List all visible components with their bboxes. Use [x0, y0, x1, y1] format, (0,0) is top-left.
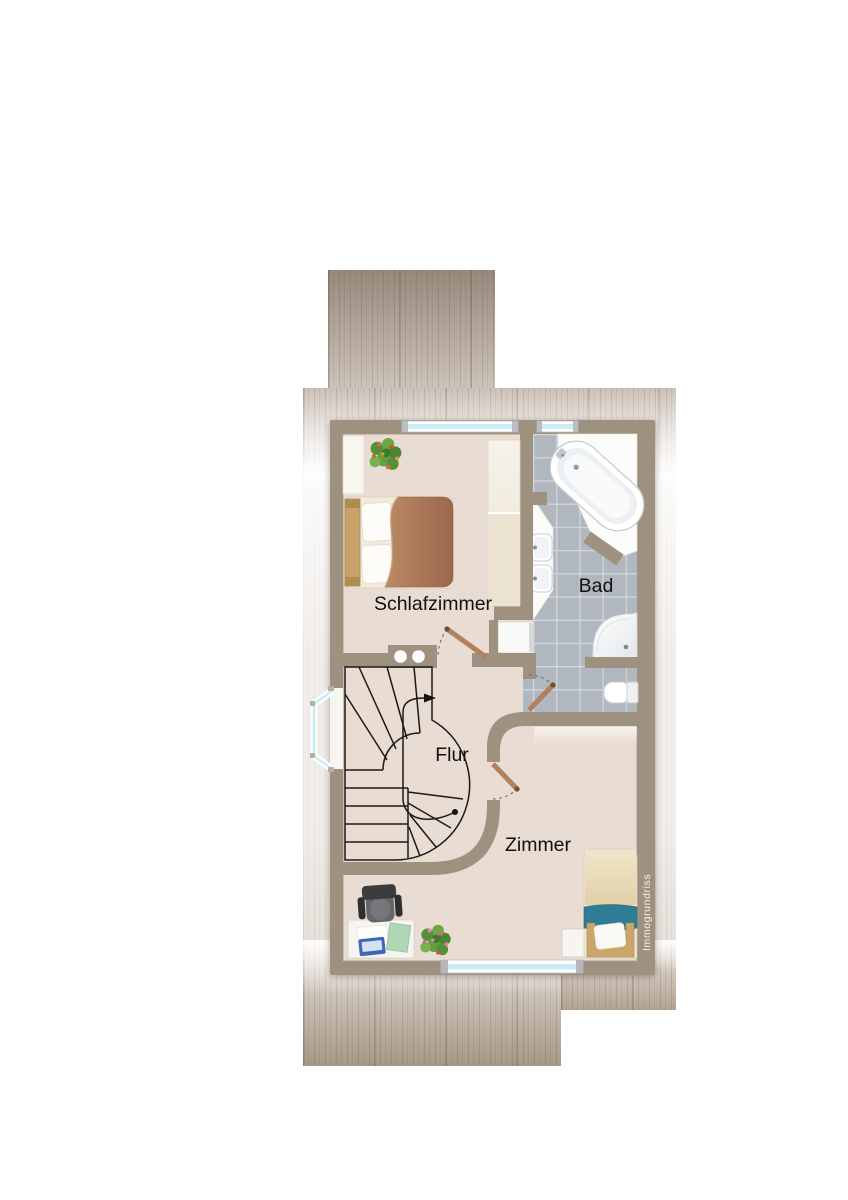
window-zimmer: [441, 960, 583, 973]
nightstand: [562, 929, 586, 957]
bay-window: [310, 686, 343, 772]
label-zimmer: Zimmer: [505, 834, 572, 856]
floor-highlight: [534, 727, 637, 744]
pillow: [361, 502, 393, 542]
blanket: [585, 850, 636, 905]
faucet-icon: [533, 577, 537, 581]
label-bad: Bad: [579, 575, 614, 597]
green-sheet: [386, 923, 411, 953]
label-schlafzimmer: Schlafzimmer: [374, 593, 493, 615]
floor-plan-drawing: Schlafzimmer Bad Flur Zimmer Immogrundri…: [0, 0, 848, 1200]
drain-icon: [624, 645, 629, 650]
watermark-text: Immogrundriss: [641, 874, 653, 951]
single-bed: [584, 849, 637, 958]
headboard: [345, 499, 360, 586]
pillow: [594, 922, 627, 949]
toilet: [604, 682, 638, 703]
faucet-icon: [533, 546, 537, 550]
floor-plan-page: Schlafzimmer Bad Flur Zimmer Immogrundri…: [0, 0, 848, 1200]
double-bed: [345, 497, 453, 588]
chimney: [388, 645, 437, 668]
desk: [348, 920, 414, 958]
closet: [343, 436, 364, 494]
wardrobe: [488, 440, 520, 606]
window-bad: [537, 421, 578, 432]
washing-machine: [498, 622, 534, 653]
label-flur: Flur: [435, 744, 469, 766]
chair-backrest: [362, 884, 397, 900]
window-schlafzimmer: [402, 421, 518, 432]
blanket: [385, 497, 453, 587]
